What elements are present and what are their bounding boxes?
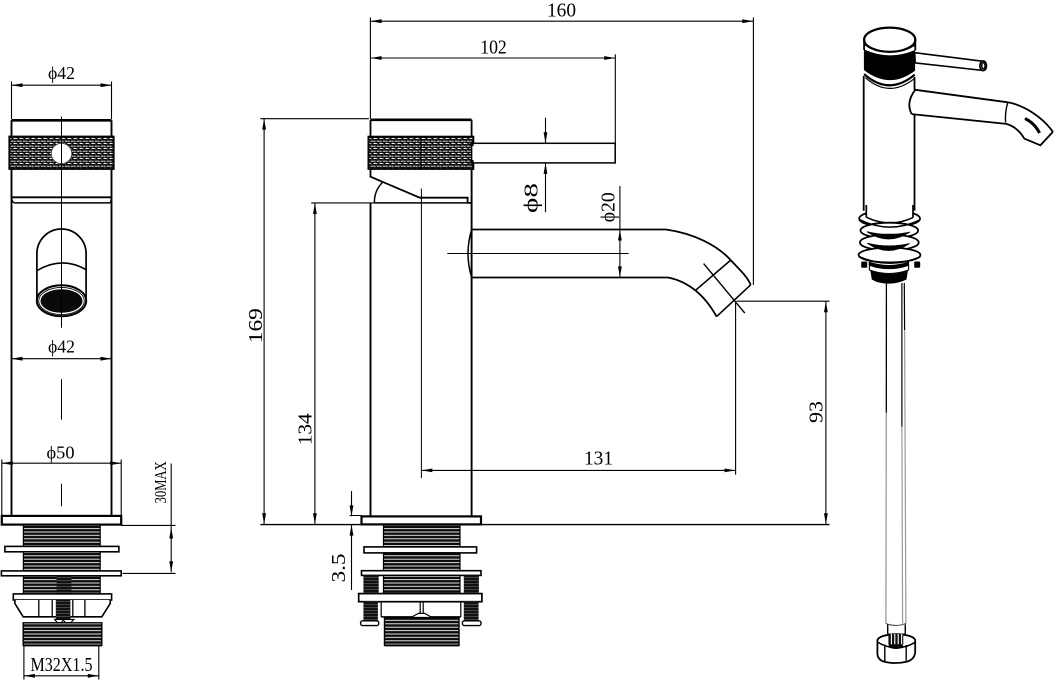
svg-text:ϕ8: ϕ8 — [522, 183, 543, 213]
svg-text:3.5: 3.5 — [329, 554, 350, 583]
svg-text:M32X1.5: M32X1.5 — [31, 654, 93, 676]
svg-text:ϕ20: ϕ20 — [599, 192, 620, 222]
svg-text:160: 160 — [547, 0, 576, 22]
svg-text:ϕ42: ϕ42 — [48, 63, 75, 83]
svg-text:102: 102 — [480, 37, 507, 59]
svg-text:ϕ50: ϕ50 — [47, 443, 75, 463]
svg-text:ϕ42: ϕ42 — [48, 337, 75, 357]
svg-text:93: 93 — [806, 401, 828, 423]
svg-text:131: 131 — [584, 448, 613, 470]
svg-text:30MAX: 30MAX — [151, 461, 170, 503]
svg-text:134: 134 — [295, 413, 317, 445]
